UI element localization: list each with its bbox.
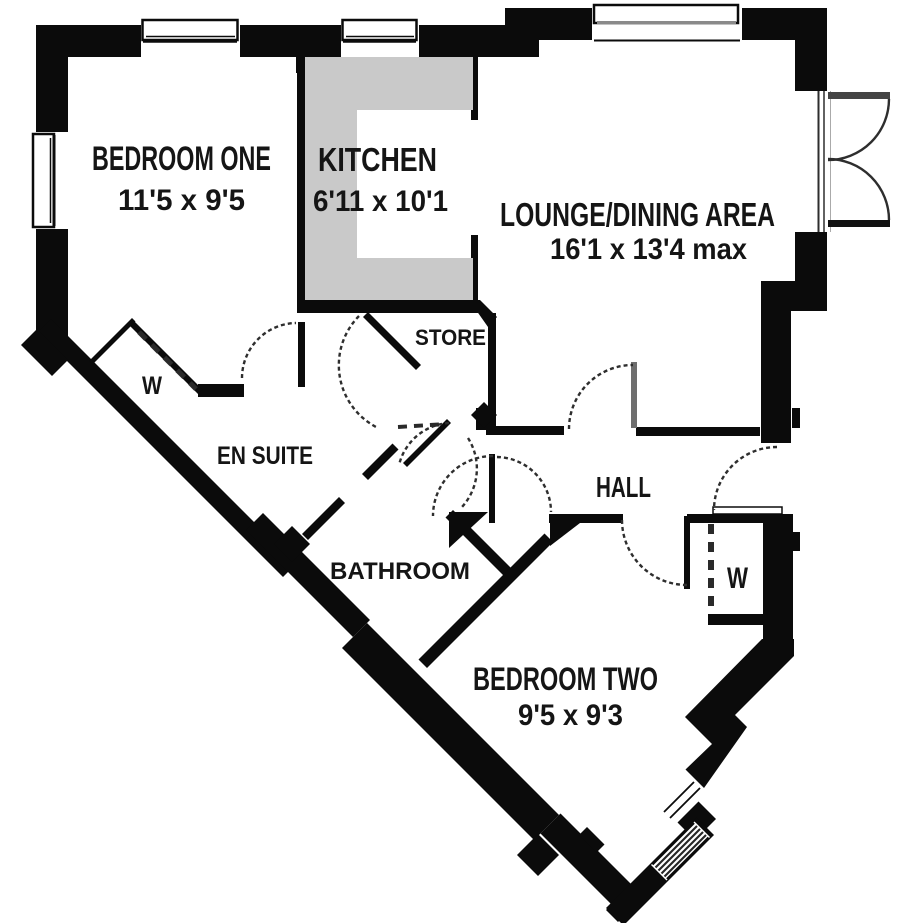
svg-text:BEDROOM TWO: BEDROOM TWO: [473, 661, 658, 697]
svg-text:KITCHEN: KITCHEN: [318, 141, 437, 178]
svg-text:6'11 x 10'1: 6'11 x 10'1: [313, 185, 448, 218]
svg-text:STORE: STORE: [415, 325, 486, 350]
svg-text:16'1 x 13'4 max: 16'1 x 13'4 max: [550, 233, 747, 266]
svg-text:11'5 x 9'5: 11'5 x 9'5: [118, 184, 245, 217]
svg-text:BEDROOM ONE: BEDROOM ONE: [92, 140, 271, 178]
svg-text:LOUNGE/DINING AREA: LOUNGE/DINING AREA: [500, 196, 775, 233]
svg-text:W: W: [142, 372, 162, 400]
svg-text:EN SUITE: EN SUITE: [217, 442, 313, 470]
svg-text:W: W: [727, 562, 748, 595]
svg-text:BATHROOM: BATHROOM: [330, 558, 470, 585]
svg-text:9'5 x 9'3: 9'5 x 9'3: [518, 699, 623, 732]
svg-text:HALL: HALL: [596, 472, 651, 504]
